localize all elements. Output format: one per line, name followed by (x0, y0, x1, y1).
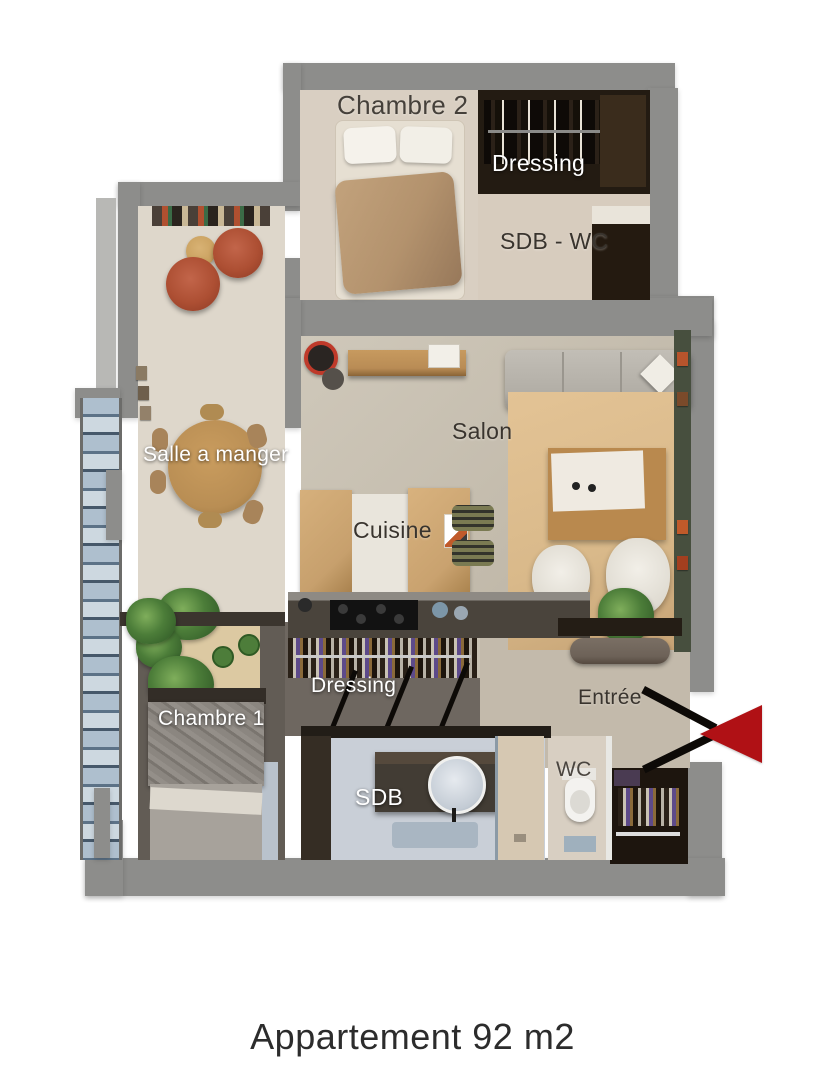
wall-left-upper (118, 182, 140, 418)
burner-2 (356, 614, 366, 624)
bed2-pillow-right (399, 126, 452, 164)
entrance-arrow (700, 705, 762, 763)
sdb-wardrobe-left (301, 736, 331, 860)
shower-drain (514, 834, 526, 842)
wall-frame-1 (136, 366, 147, 380)
entry-closet-shelf (616, 832, 680, 836)
bed2-duvet (334, 171, 462, 295)
shower-glass (495, 736, 498, 860)
sdb-wc-counter (592, 206, 650, 224)
bar-stool-1 (452, 505, 494, 531)
wall-top-chambre2 (283, 63, 675, 90)
kitchen-pot (298, 598, 312, 612)
wall-terrace-left (96, 198, 116, 392)
dressing-bas-wardrobe (288, 638, 480, 678)
wall-kitchen-left (283, 298, 301, 428)
wall-mid-band (283, 298, 712, 336)
window-mullion-2 (94, 788, 110, 858)
hall-console (558, 618, 682, 636)
dining-chair-1 (200, 404, 224, 420)
wall-right-salon (690, 320, 714, 692)
green-wall-frame-3 (677, 520, 688, 534)
dressing-haut-shelf (600, 95, 646, 187)
kitchen-bowl-2 (454, 606, 468, 620)
kitchen-bowl-1 (432, 602, 448, 618)
table-decor-2 (588, 484, 596, 492)
kitchen-island-mid (352, 494, 408, 592)
sdb-wc-cabinet (592, 224, 650, 300)
dining-chair-2 (152, 428, 168, 452)
plant-chambre1-2 (126, 598, 176, 644)
wc-partition (606, 736, 612, 860)
green-wall-frame-2 (677, 392, 688, 406)
coffee-table-top (551, 450, 645, 511)
dining-chair-4 (198, 512, 222, 528)
desk-stool-2 (238, 634, 260, 656)
wall-top-living (118, 182, 301, 206)
toilet-seat (570, 790, 590, 814)
entry-closet-clothes (618, 788, 680, 826)
bed1-duvet (148, 702, 264, 786)
burner-1 (338, 604, 348, 614)
wall-right-top (648, 88, 678, 304)
sdb-bath-mat (392, 822, 478, 848)
accent-wall-green (674, 330, 691, 652)
hall-bench (570, 638, 670, 664)
dressing-bas-rail (296, 655, 471, 658)
floor-plan: Chambre 2 Dressing SDB - WC Salle a mang… (0, 0, 825, 1005)
dining-chair-3 (150, 470, 166, 494)
window-mullion-1 (106, 470, 122, 540)
sideboard-magazines (428, 344, 460, 368)
wc-mat (564, 836, 596, 852)
wall-frame-2 (138, 386, 149, 400)
wall-frame-3 (140, 406, 151, 420)
burner-4 (394, 614, 404, 624)
sdb-mirror (428, 756, 486, 814)
entry-closet-box (614, 770, 640, 786)
green-wall-frame-4 (677, 556, 688, 570)
plan-caption: Appartement 92 m2 (0, 1016, 825, 1058)
armchair-red-1 (213, 228, 263, 278)
bed2-pillow-left (343, 126, 397, 165)
burner-3 (376, 604, 386, 614)
kitchen-island-left (300, 490, 352, 592)
bistro-stool (322, 368, 344, 390)
green-wall-frame-1 (677, 352, 688, 366)
table-decor-1 (572, 482, 580, 490)
armchair-red-2 (166, 257, 220, 311)
desk-stool-1 (212, 646, 234, 668)
bar-stool-2 (452, 540, 494, 566)
bookshelf (152, 206, 270, 226)
